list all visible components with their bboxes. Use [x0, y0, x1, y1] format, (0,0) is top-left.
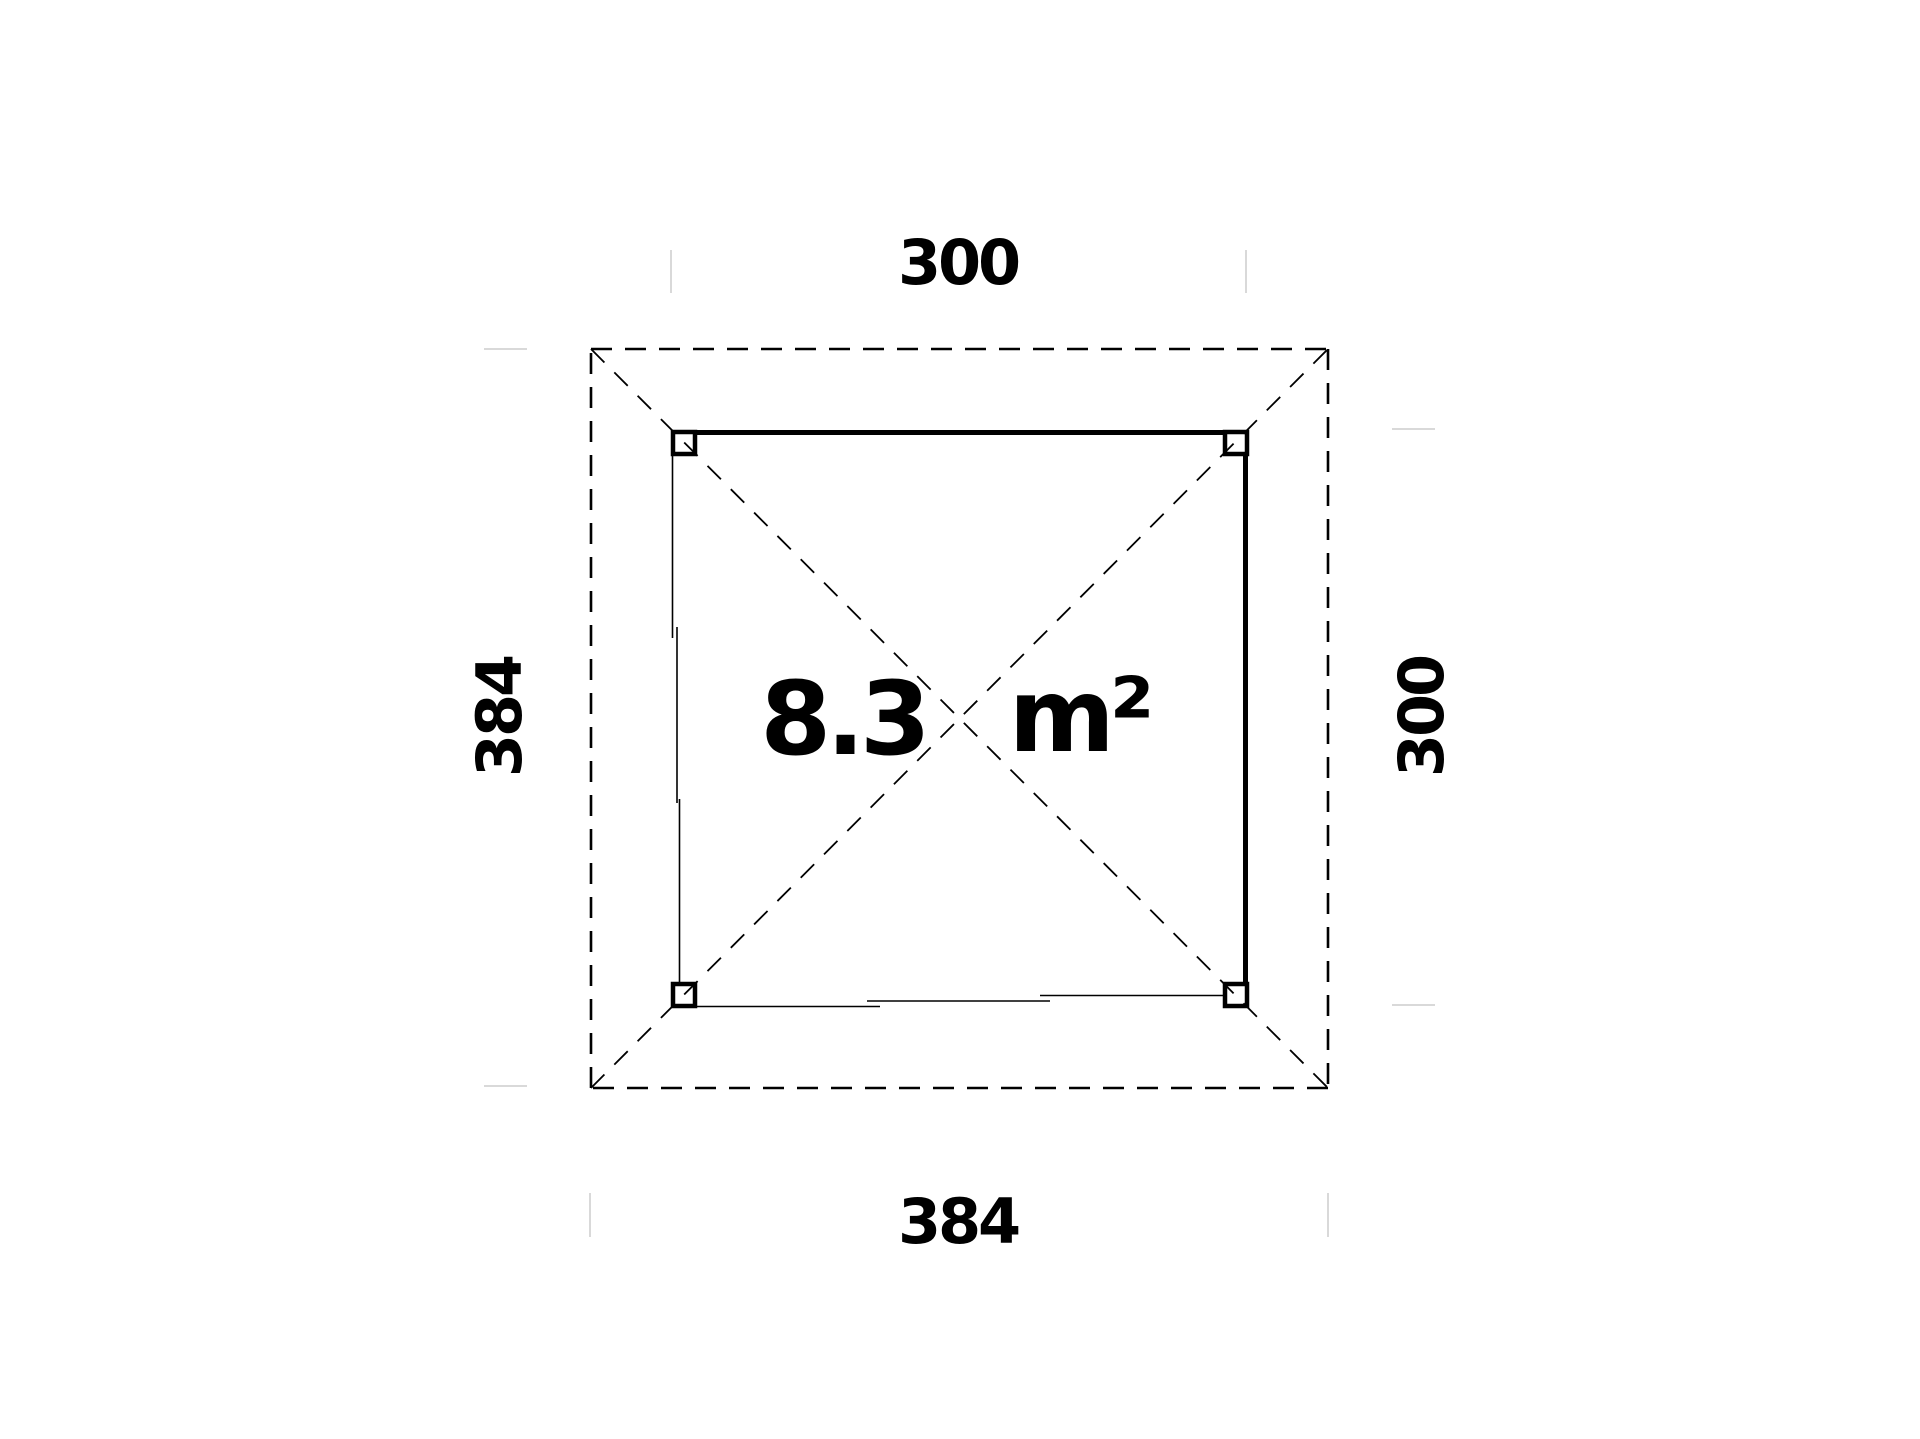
dimension-label-right: 300: [1391, 657, 1453, 777]
area-value-label: 8.3: [760, 669, 925, 771]
roof-ridge-diagonals: [591, 349, 1328, 1088]
area-unit-label: m²: [1009, 666, 1150, 768]
gazebo-floor-plan: 300 384 300 384 8.3 m²: [0, 0, 1920, 1439]
corner-post-top-right: [1225, 432, 1247, 454]
dimension-label-top: 300: [898, 232, 1018, 294]
roof-overhang-outline: [591, 349, 1328, 1088]
dimension-label-bottom: 384: [898, 1191, 1018, 1253]
roof-diagonal-tl-br: [591, 349, 1328, 1088]
dimension-label-left: 384: [469, 657, 531, 777]
roof-diagonal-bl-tr: [591, 349, 1328, 1088]
